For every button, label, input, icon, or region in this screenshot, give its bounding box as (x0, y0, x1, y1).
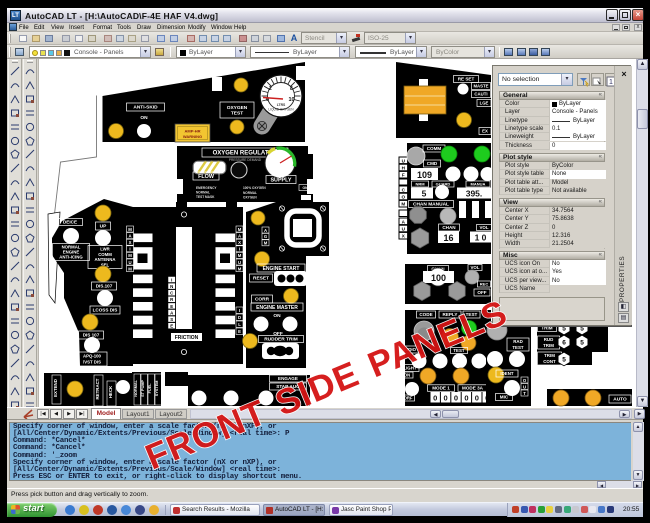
svg-text:SUPPLY: SUPPLY (270, 177, 291, 183)
svg-text:CONT: CONT (543, 359, 556, 364)
svg-text:EMERGENCY: EMERGENCY (196, 186, 217, 190)
svg-text:X: X (238, 240, 241, 245)
svg-text:PRESSURE DEMAND: PRESSURE DEMAND (229, 158, 262, 162)
svg-text:5: 5 (422, 189, 427, 199)
svg-text:EX: EX (482, 129, 488, 134)
svg-text:A: A (128, 233, 131, 238)
svg-text:O: O (402, 195, 406, 200)
svg-text:5: 5 (580, 325, 584, 332)
svg-text:DEICE: DEICE (63, 220, 77, 225)
svg-text:A: A (264, 228, 267, 233)
svg-text:ON: ON (404, 373, 410, 378)
svg-text:5: 5 (562, 325, 566, 332)
svg-text:395.: 395. (466, 189, 483, 199)
svg-text:I: I (239, 308, 240, 313)
svg-text:DIS.107: DIS.107 (96, 284, 113, 289)
svg-text:ON: ON (302, 186, 308, 190)
svg-text:IDENT: IDENT (500, 371, 513, 376)
svg-text:LTRS: LTRS (277, 103, 286, 107)
svg-text:NRM: NRM (415, 181, 425, 186)
svg-text:10: 10 (289, 97, 295, 103)
svg-text:NORMAL: NORMAL (134, 379, 138, 396)
svg-text:1: 1 (609, 79, 613, 86)
svg-text:/VST DIS: /VST DIS (83, 359, 101, 364)
svg-text:LCOSS DIS: LCOSS DIS (93, 308, 118, 313)
svg-text:ANTI-SKID: ANTI-SKID (133, 105, 158, 111)
svg-text:DIS 107: DIS 107 (83, 333, 100, 338)
svg-text:FRICTION: FRICTION (175, 335, 199, 341)
svg-text:ORF: ORF (404, 396, 413, 401)
svg-text:OXYGEN: OXYGEN (243, 196, 257, 200)
svg-text:109: 109 (417, 170, 432, 180)
svg-text:STAB AUG: STAB AUG (276, 384, 300, 389)
svg-text:ON: ON (140, 115, 148, 121)
svg-text:TRIM: TRIM (543, 343, 554, 348)
svg-text:OFF: OFF (139, 141, 149, 147)
svg-text:MIC: MIC (500, 395, 509, 400)
svg-text:E: E (170, 304, 173, 309)
svg-text:LWR: LWR (100, 246, 110, 251)
svg-text:1 0: 1 0 (475, 233, 487, 243)
svg-text:NORMAL: NORMAL (243, 191, 257, 195)
svg-text:ENGINE MASTER: ENGINE MASTER (256, 305, 298, 311)
svg-text:OFF: OFF (477, 290, 486, 295)
svg-text:RETRACT: RETRACT (95, 378, 100, 399)
svg-text:RAD: RAD (513, 339, 523, 344)
svg-text:0: 0 (454, 394, 458, 403)
svg-text:100% OXYGEN: 100% OXYGEN (243, 186, 266, 190)
svg-text:UP: UP (100, 224, 107, 230)
svg-text:M: M (238, 266, 242, 271)
svg-text:8: 8 (290, 86, 293, 92)
svg-text:M: M (264, 241, 268, 246)
svg-text:WARNING: WARNING (183, 134, 202, 139)
svg-text:ENGINE START: ENGINE START (263, 266, 300, 272)
svg-text:0: 0 (444, 394, 448, 403)
svg-text:S: S (170, 317, 173, 322)
svg-text:U: U (128, 260, 131, 265)
svg-text:6: 6 (562, 339, 566, 346)
svg-text:2: 2 (269, 86, 272, 92)
svg-text:ANTENNA: ANTENNA (94, 257, 115, 262)
svg-text:FLOW: FLOW (198, 174, 215, 180)
svg-text:E: E (170, 324, 173, 329)
svg-text:0: 0 (433, 394, 437, 403)
svg-text:HECK: HECK (108, 385, 113, 398)
svg-text:F: F (402, 173, 405, 178)
svg-text:SYSTEM: SYSTEM (155, 381, 159, 397)
svg-text:RESET: RESET (253, 276, 269, 282)
svg-text:TRIM: TRIM (544, 353, 555, 358)
svg-text:M: M (238, 253, 242, 258)
svg-text:I: I (239, 247, 240, 252)
svg-text:N: N (170, 284, 173, 289)
svg-text:5: 5 (562, 356, 566, 363)
svg-text:CORR: CORR (255, 297, 270, 303)
svg-text:MODE 3A: MODE 3A (462, 386, 484, 391)
svg-text:16: 16 (443, 233, 453, 243)
svg-text:VOL: VOL (470, 265, 479, 270)
svg-text:TEST: TEST (466, 312, 478, 317)
svg-text:I: I (129, 247, 130, 252)
svg-text:AUTO: AUTO (613, 397, 627, 403)
svg-text:ON: ON (273, 313, 281, 319)
svg-text:LIGHT: LIGHT (403, 366, 416, 371)
svg-text:COMM: COMM (427, 146, 442, 151)
svg-text:MODE 1: MODE 1 (432, 386, 450, 391)
svg-text:E: E (238, 329, 241, 334)
svg-text:CODE: CODE (419, 312, 432, 317)
svg-text:AMP-HR: AMP-HR (185, 129, 201, 134)
svg-text:M: M (128, 227, 132, 232)
svg-text:100: 100 (431, 273, 446, 283)
svg-text:M: M (401, 202, 405, 207)
svg-text:A: A (238, 233, 241, 238)
svg-text:TEST: TEST (231, 110, 243, 116)
svg-text:CHAN: CHAN (442, 225, 456, 230)
svg-text:NORMAL: NORMAL (196, 191, 210, 195)
svg-text:L: L (238, 322, 241, 327)
svg-text:I: I (171, 277, 172, 282)
svg-text:AUDIO: AUDIO (402, 347, 417, 352)
svg-text:D: D (238, 315, 241, 320)
svg-text:OFF: OFF (273, 331, 283, 337)
svg-text:CMD: CMD (427, 161, 438, 166)
svg-text:COMM: COMM (98, 252, 112, 257)
svg-text:0: 0 (464, 394, 468, 403)
svg-text:ANTI-ICING: ANTI-ICING (59, 255, 83, 260)
svg-text:M: M (128, 266, 132, 271)
svg-text:REC: REC (480, 281, 489, 286)
svg-text:LGE: LGE (480, 101, 489, 106)
svg-text:RUDDER TRIM: RUDDER TRIM (264, 337, 298, 343)
svg-text:0: 0 (475, 394, 479, 403)
svg-text:TEST: TEST (512, 345, 524, 350)
svg-text:MANUA: MANUA (471, 181, 486, 186)
svg-text:REPLY: REPLY (443, 312, 458, 317)
svg-text:EXTEND: EXTEND (53, 379, 58, 397)
svg-text:M: M (128, 253, 132, 258)
svg-text:X: X (129, 240, 132, 245)
svg-text:TEST: TEST (453, 348, 465, 353)
svg-text:LIQUID OXYGEN: LIQUID OXYGEN (268, 108, 294, 112)
svg-text:APQ-100: APQ-100 (83, 354, 102, 359)
svg-text:5: 5 (580, 339, 584, 346)
svg-text:T: T (523, 391, 526, 396)
svg-text:MASTE: MASTE (473, 84, 488, 89)
svg-text:FUEL: FUEL (148, 383, 152, 394)
svg-text:U: U (238, 260, 241, 265)
svg-text:CAUTI: CAUTI (474, 92, 487, 97)
svg-text:ENGAGE: ENGAGE (278, 376, 298, 381)
svg-text:U: U (523, 384, 526, 389)
svg-text:RUD: RUD (544, 337, 554, 342)
svg-text:OXYGEN: OXYGEN (227, 105, 248, 111)
svg-text:TRIM: TRIM (541, 326, 552, 331)
svg-text:TEST MASK: TEST MASK (196, 195, 215, 199)
svg-text:ST PUMP: ST PUMP (141, 380, 145, 397)
svg-text:RE SET: RE SET (458, 77, 475, 82)
svg-text:M: M (238, 227, 242, 232)
svg-text:VOL: VOL (479, 225, 488, 230)
